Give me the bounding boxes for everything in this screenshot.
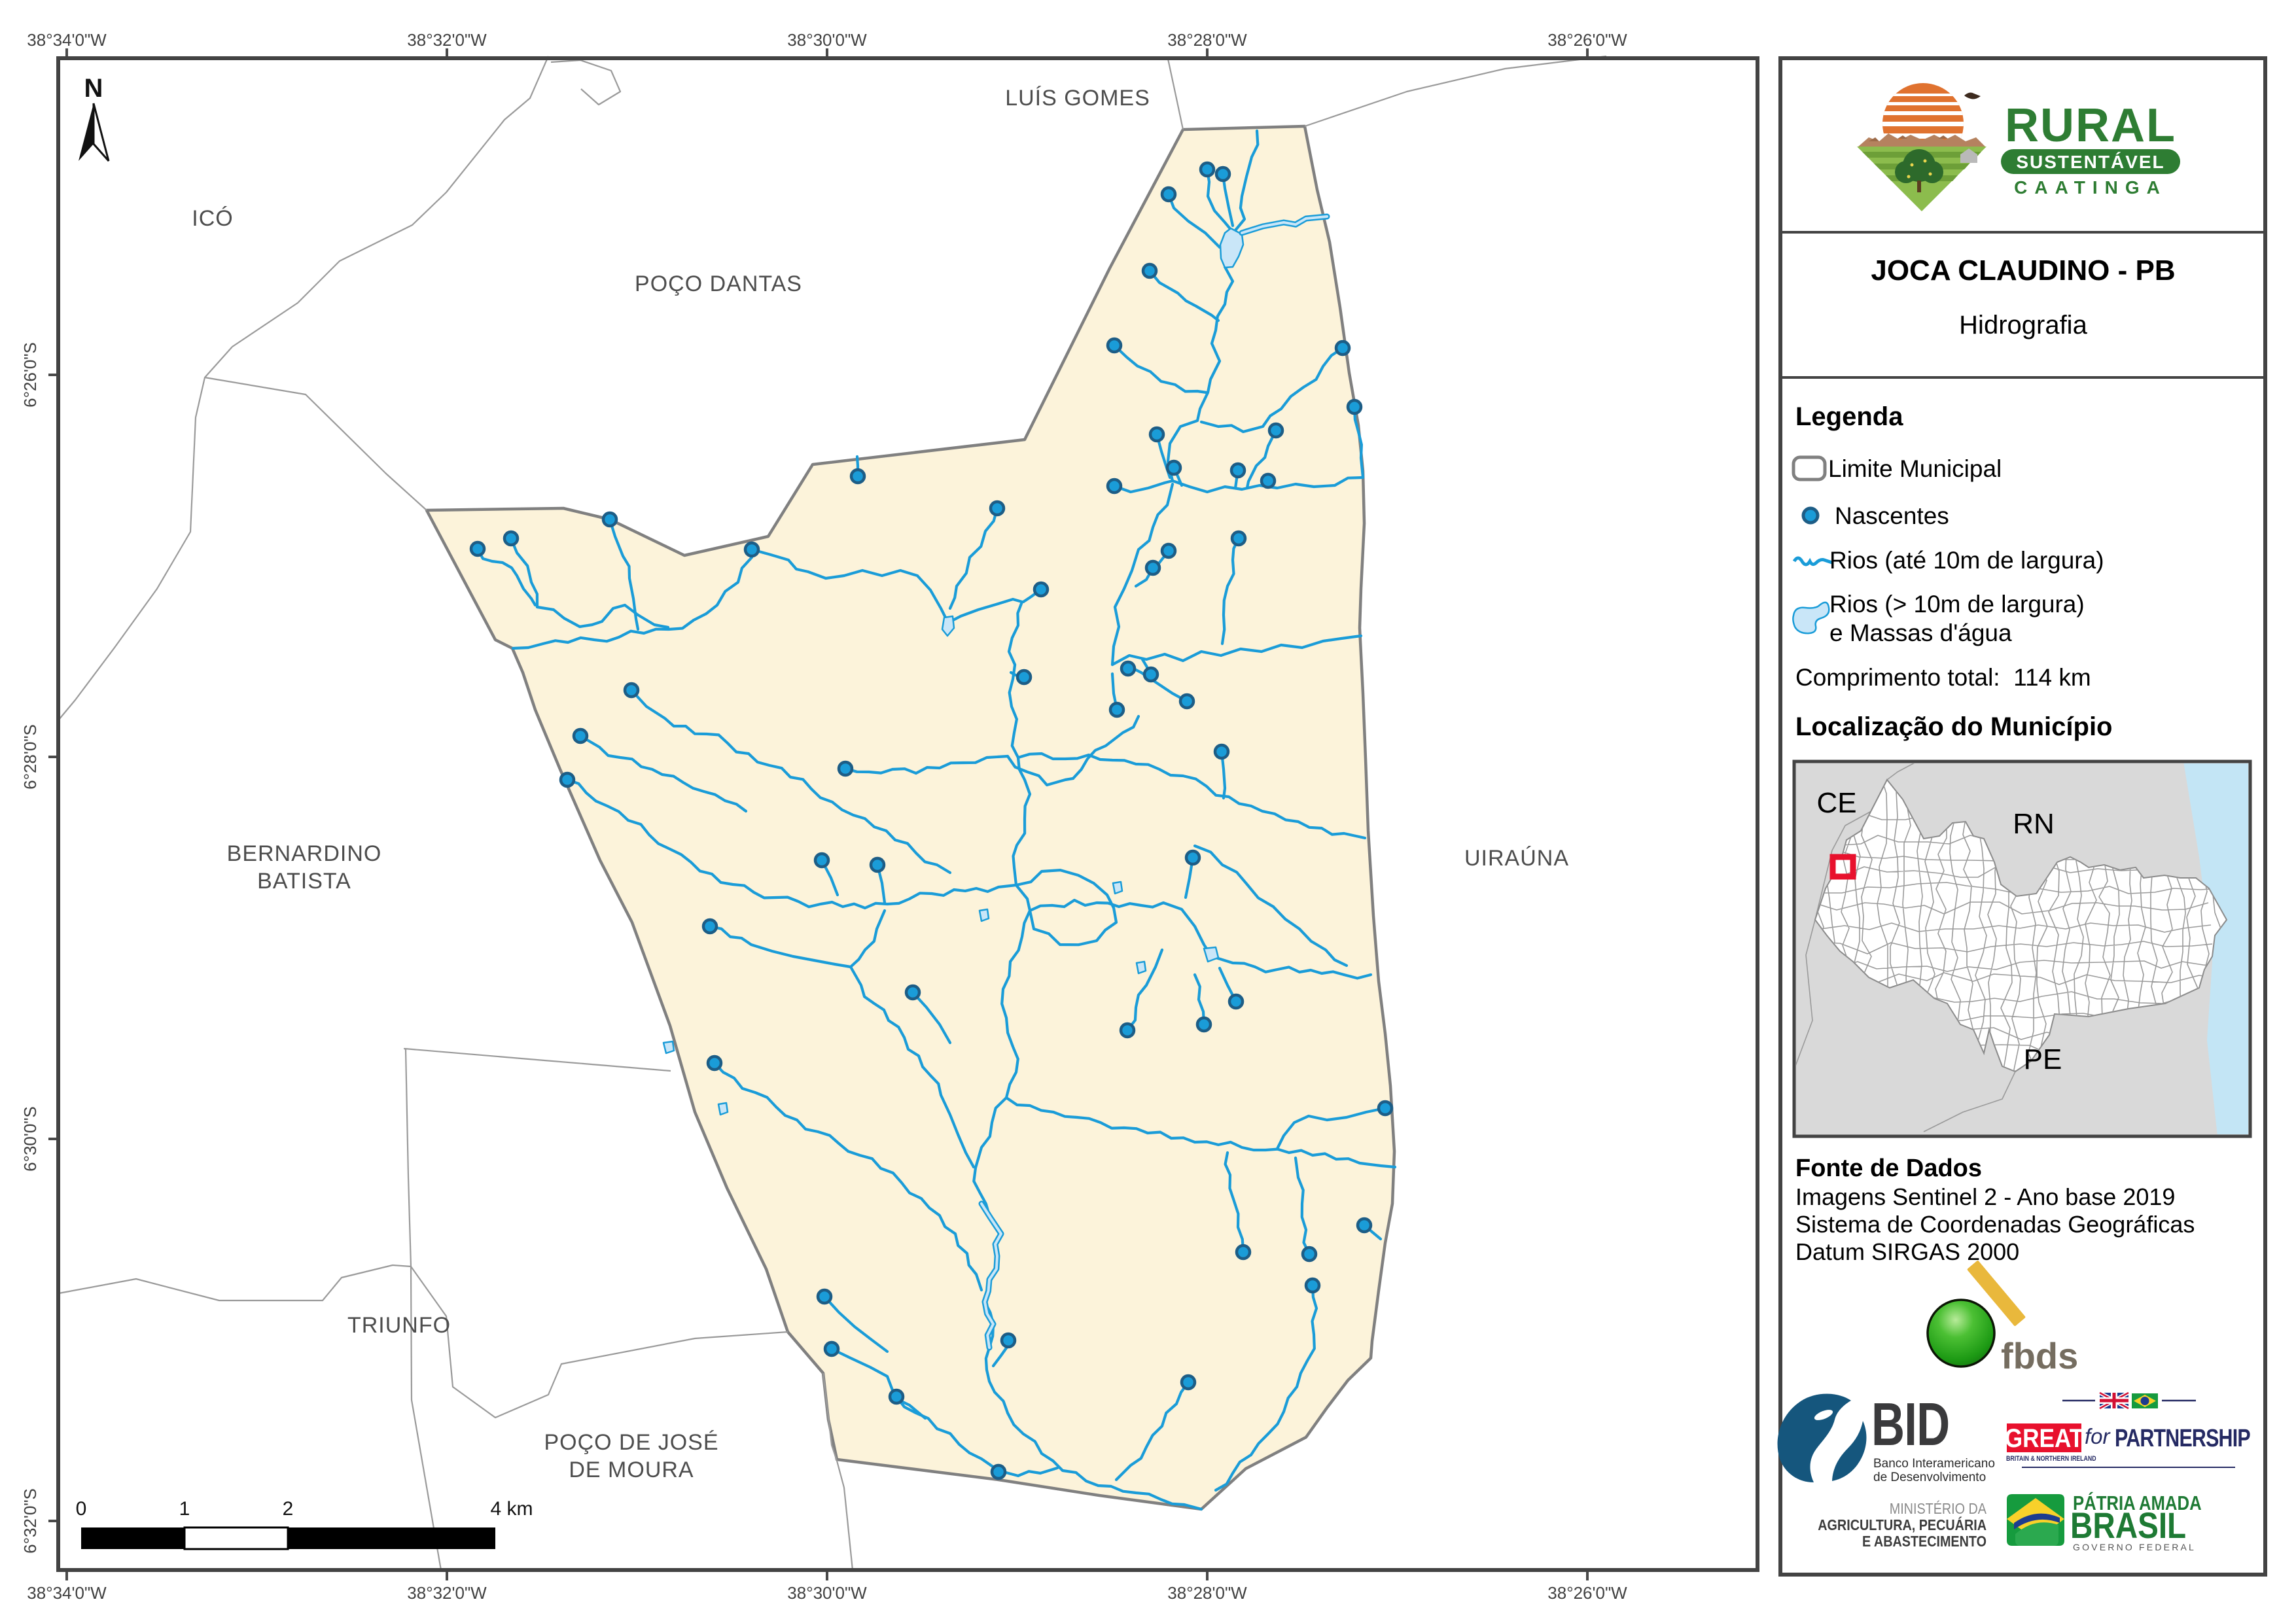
svg-text:Banco Interamericano: Banco Interamericano — [1873, 1457, 1995, 1471]
svg-text:JOCA CLAUDINO - PB: JOCA CLAUDINO - PB — [1871, 254, 2175, 287]
svg-text:38°26'0"W: 38°26'0"W — [1547, 1583, 1627, 1603]
svg-text:6°26'0"S: 6°26'0"S — [20, 342, 40, 408]
svg-text:Rios (> 10m de largura): Rios (> 10m de largura) — [1829, 591, 2085, 618]
svg-text:CE: CE — [1816, 787, 1856, 819]
svg-text:38°34'0"W: 38°34'0"W — [27, 30, 107, 50]
svg-text:BATISTA: BATISTA — [257, 869, 351, 894]
svg-text:fbds: fbds — [2001, 1335, 2078, 1376]
svg-text:1: 1 — [179, 1498, 190, 1520]
svg-text:RN: RN — [2013, 808, 2055, 840]
svg-text:Sistema de Coordenadas Geográf: Sistema de Coordenadas Geográficas — [1795, 1211, 2195, 1238]
svg-text:ICÓ: ICÓ — [192, 206, 233, 231]
svg-text:POÇO DE JOSÉ: POÇO DE JOSÉ — [544, 1430, 718, 1455]
svg-text:DE MOURA: DE MOURA — [569, 1457, 694, 1482]
svg-text:38°32'0"W: 38°32'0"W — [407, 1583, 487, 1603]
svg-text:Imagens Sentinel 2 - Ano base: Imagens Sentinel 2 - Ano base 2019 — [1795, 1183, 2175, 1210]
svg-text:MINISTÉRIO DA: MINISTÉRIO DA — [1890, 1500, 1987, 1518]
svg-text:Hidrografia: Hidrografia — [1959, 311, 2087, 340]
svg-text:Fonte de Dados: Fonte de Dados — [1795, 1155, 1982, 1182]
svg-text:Localização do Município: Localização do Município — [1795, 712, 2113, 741]
svg-text:Legenda: Legenda — [1795, 402, 1903, 431]
svg-text:38°30'0"W: 38°30'0"W — [787, 30, 867, 50]
svg-text:RURAL: RURAL — [2005, 99, 2176, 152]
svg-text:POÇO DANTAS: POÇO DANTAS — [635, 271, 802, 296]
svg-text:LUÍS GOMES: LUÍS GOMES — [1005, 86, 1150, 111]
svg-text:e Massas d'água: e Massas d'água — [1829, 620, 2012, 646]
svg-text:BRITAIN & NORTHERN IRELAND: BRITAIN & NORTHERN IRELAND — [2006, 1455, 2096, 1463]
svg-text:for: for — [2085, 1424, 2111, 1448]
svg-text:CAATINGA: CAATINGA — [2014, 177, 2167, 198]
svg-text:38°28'0"W: 38°28'0"W — [1167, 30, 1247, 50]
svg-text:Limite Municipal: Limite Municipal — [1828, 455, 2002, 482]
svg-text:Comprimento total: 114 km: Comprimento total: 114 km — [1795, 664, 2091, 691]
svg-text:GOVERNO FEDERAL: GOVERNO FEDERAL — [2073, 1542, 2196, 1552]
svg-text:38°28'0"W: 38°28'0"W — [1167, 1583, 1247, 1603]
svg-text:UIRAÚNA: UIRAÚNA — [1464, 846, 1569, 871]
svg-text:38°34'0"W: 38°34'0"W — [27, 1583, 107, 1603]
svg-text:TRIUNFO: TRIUNFO — [347, 1313, 451, 1338]
svg-text:AGRICULTURA, PECUÁRIA: AGRICULTURA, PECUÁRIA — [1818, 1516, 1987, 1534]
svg-text:PARTNERSHIP: PARTNERSHIP — [2115, 1425, 2250, 1452]
svg-text:BID: BID — [1871, 1390, 1949, 1459]
svg-text:BRASIL: BRASIL — [2070, 1505, 2186, 1546]
svg-text:38°30'0"W: 38°30'0"W — [787, 1583, 867, 1603]
svg-text:GREAT: GREAT — [2005, 1423, 2084, 1453]
svg-text:2: 2 — [283, 1498, 294, 1520]
svg-text:PE: PE — [2024, 1043, 2062, 1075]
svg-text:38°26'0"W: 38°26'0"W — [1547, 30, 1627, 50]
svg-text:SUSTENTÁVEL: SUSTENTÁVEL — [2016, 152, 2164, 172]
svg-text:0: 0 — [76, 1498, 87, 1520]
svg-text:Nascentes: Nascentes — [1835, 502, 1949, 529]
svg-text:BERNARDINO: BERNARDINO — [227, 841, 382, 866]
svg-text:6°32'0"S: 6°32'0"S — [20, 1488, 40, 1554]
svg-text:4 km: 4 km — [490, 1498, 533, 1520]
svg-text:Rios (até 10m de largura): Rios (até 10m de largura) — [1829, 547, 2104, 574]
svg-text:38°32'0"W: 38°32'0"W — [407, 30, 487, 50]
svg-text:E ABASTECIMENTO: E ABASTECIMENTO — [1862, 1533, 1987, 1550]
svg-text:N: N — [84, 74, 103, 103]
svg-text:6°30'0"S: 6°30'0"S — [20, 1106, 40, 1172]
svg-text:6°28'0"S: 6°28'0"S — [20, 724, 40, 790]
svg-text:Datum SIRGAS 2000: Datum SIRGAS 2000 — [1795, 1238, 2019, 1265]
svg-text:de Desenvolvimento: de Desenvolvimento — [1873, 1471, 1986, 1484]
